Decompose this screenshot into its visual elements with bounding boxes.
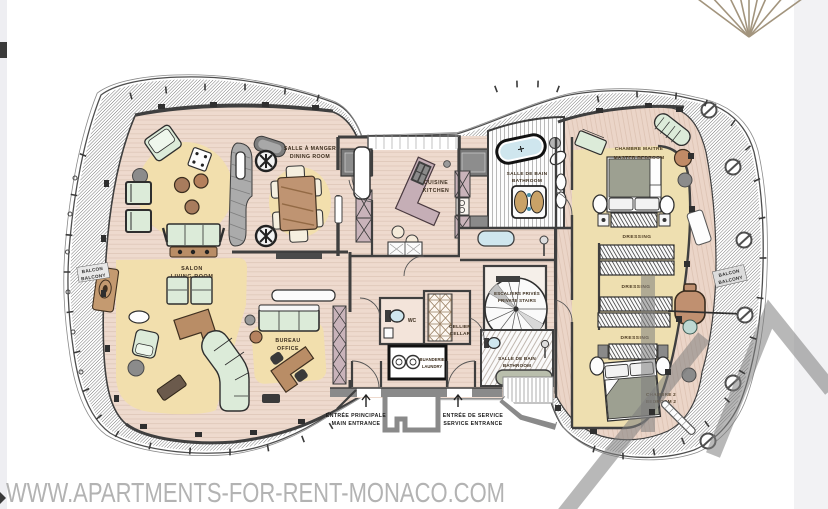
- svg-text:SERVICE ENTRANCE: SERVICE ENTRANCE: [443, 421, 502, 427]
- svg-text:BATHROOM: BATHROOM: [512, 178, 542, 184]
- svg-text:CELLIER: CELLIER: [449, 324, 471, 330]
- svg-text:DRESSING: DRESSING: [622, 234, 651, 240]
- svg-text:ENTRÉE PRINCIPALE: ENTRÉE PRINCIPALE: [326, 411, 386, 419]
- svg-text:KITCHEN: KITCHEN: [423, 188, 450, 194]
- svg-text:SALLE DE BAIN: SALLE DE BAIN: [507, 171, 548, 177]
- svg-text:WWW.APARTMENTS-FOR-RENT-MONACO: WWW.APARTMENTS-FOR-RENT-MONACO.COM: [6, 477, 505, 508]
- svg-text:CUISINE: CUISINE: [424, 180, 449, 186]
- svg-text:DINING ROOM: DINING ROOM: [290, 154, 330, 160]
- svg-text:SALLE DE BAIN: SALLE DE BAIN: [498, 356, 536, 361]
- svg-text:LAUNDRY: LAUNDRY: [422, 364, 443, 369]
- svg-text:ESCALIERS PRIVÉS: ESCALIERS PRIVÉS: [494, 291, 540, 296]
- svg-text:CHAMBRE MAITRE: CHAMBRE MAITRE: [615, 146, 664, 152]
- svg-text:PRIVATE STAIRS: PRIVATE STAIRS: [498, 298, 536, 303]
- svg-text:ENTRÉE DE SERVICE: ENTRÉE DE SERVICE: [443, 411, 504, 419]
- svg-text:MAIN ENTRANCE: MAIN ENTRANCE: [332, 421, 381, 427]
- svg-text:MASTER BEDROOM: MASTER BEDROOM: [614, 155, 665, 161]
- svg-text:WC: WC: [408, 318, 417, 324]
- svg-text:OFFICE: OFFICE: [277, 346, 299, 352]
- svg-text:BATHROOM: BATHROOM: [503, 363, 531, 368]
- svg-text:CELLAR: CELLAR: [450, 331, 471, 337]
- svg-text:BUREAU: BUREAU: [275, 338, 300, 344]
- svg-text:SALLE À MANGER: SALLE À MANGER: [284, 145, 336, 152]
- svg-text:BUANDERIE: BUANDERIE: [420, 357, 445, 362]
- svg-text:SALON: SALON: [181, 266, 203, 272]
